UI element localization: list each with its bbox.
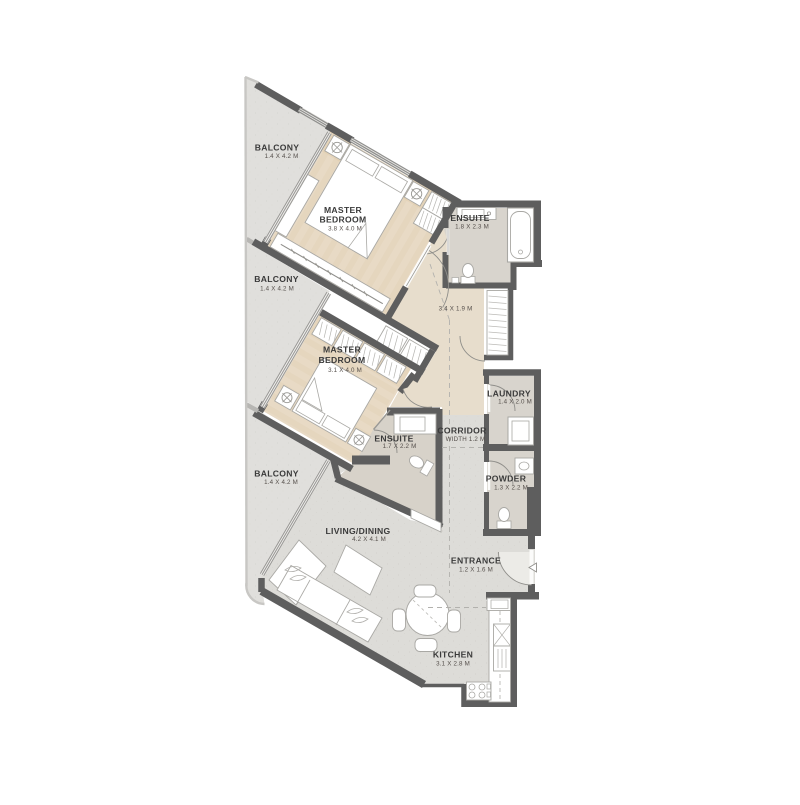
svg-text:MASTER: MASTER bbox=[323, 345, 362, 355]
svg-text:1.7 X 2.2 M: 1.7 X 2.2 M bbox=[383, 443, 417, 450]
svg-text:3.1 X 4.0 M: 3.1 X 4.0 M bbox=[328, 367, 362, 374]
svg-text:ENTRANCE: ENTRANCE bbox=[451, 556, 501, 566]
svg-text:1.4 X 2.0 M: 1.4 X 2.0 M bbox=[498, 399, 532, 406]
svg-text:BEDROOM: BEDROOM bbox=[320, 215, 367, 225]
svg-text:4.2 X 4.1 M: 4.2 X 4.1 M bbox=[352, 536, 386, 543]
svg-text:3.1 X 2.8 M: 3.1 X 2.8 M bbox=[436, 661, 470, 668]
svg-text:3.4 X 1.9 M: 3.4 X 1.9 M bbox=[439, 306, 473, 313]
svg-text:1.2 X 1.6 M: 1.2 X 1.6 M bbox=[459, 567, 493, 574]
svg-text:1.4 X 4.2 M: 1.4 X 4.2 M bbox=[265, 153, 299, 160]
svg-text:1.4 X 4.2 M: 1.4 X 4.2 M bbox=[260, 286, 294, 293]
svg-text:LAUNDRY: LAUNDRY bbox=[487, 389, 531, 399]
svg-text:BALCONY: BALCONY bbox=[255, 143, 300, 153]
svg-text:1.3 X 2.2 M: 1.3 X 2.2 M bbox=[494, 485, 528, 492]
svg-text:3.8 X 4.0 M: 3.8 X 4.0 M bbox=[328, 226, 362, 233]
svg-text:ENSUITE: ENSUITE bbox=[450, 213, 489, 223]
svg-text:BALCONY: BALCONY bbox=[254, 469, 299, 479]
svg-text:CORRIDOR: CORRIDOR bbox=[437, 426, 487, 436]
svg-text:LIVING/DINING: LIVING/DINING bbox=[325, 526, 390, 536]
svg-text:BEDROOM: BEDROOM bbox=[319, 355, 366, 365]
svg-text:MASTER: MASTER bbox=[324, 205, 363, 215]
svg-text:POWDER: POWDER bbox=[486, 474, 527, 484]
svg-text:1.8 X 2.3 M: 1.8 X 2.3 M bbox=[455, 224, 489, 231]
svg-text:1.4 X 4.2 M: 1.4 X 4.2 M bbox=[264, 479, 298, 486]
svg-text:ENSUITE: ENSUITE bbox=[374, 434, 413, 444]
svg-text:KITCHEN: KITCHEN bbox=[433, 650, 473, 660]
svg-text:WIDTH 1.2 M: WIDTH 1.2 M bbox=[446, 436, 486, 443]
svg-text:BALCONY: BALCONY bbox=[254, 274, 299, 284]
